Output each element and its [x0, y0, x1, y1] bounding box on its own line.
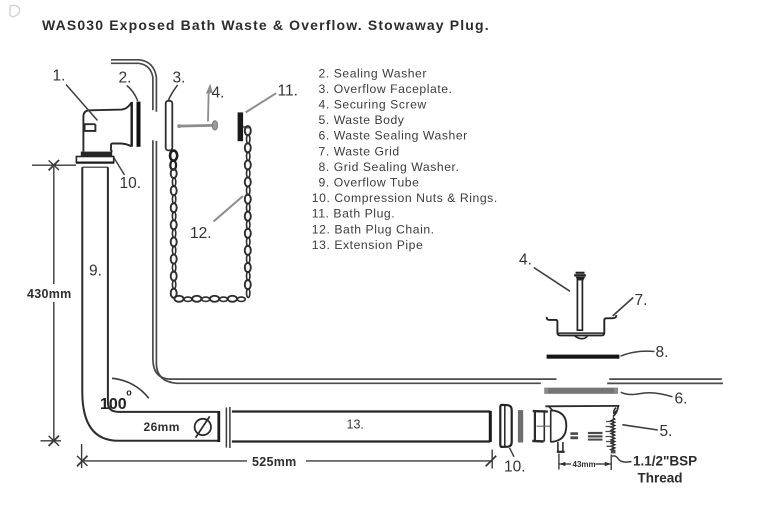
- svg-text:13.: 13.: [347, 418, 364, 432]
- svg-text:7.: 7.: [635, 292, 648, 309]
- svg-text:26mm: 26mm: [144, 420, 180, 434]
- svg-text:2.: 2.: [119, 70, 132, 87]
- svg-text:43mm: 43mm: [573, 460, 596, 469]
- svg-text:3.: 3.: [173, 70, 186, 87]
- svg-text:9.: 9.: [89, 263, 102, 280]
- svg-text:5. Waste Body: 5. Waste Body: [319, 113, 405, 127]
- svg-text:12. Bath Plug Chain.: 12. Bath Plug Chain.: [312, 222, 435, 236]
- svg-text:12.: 12.: [190, 225, 212, 242]
- svg-text:8. Grid Sealing Washer.: 8. Grid Sealing Washer.: [319, 160, 460, 174]
- svg-text:1.1/2"BSP: 1.1/2"BSP: [633, 454, 697, 469]
- svg-text:11.: 11.: [278, 83, 298, 100]
- svg-text:4.: 4.: [519, 252, 532, 269]
- svg-text:100: 100: [100, 396, 127, 413]
- svg-text:1.: 1.: [53, 68, 66, 85]
- svg-text:4. Securing Screw: 4. Securing Screw: [319, 98, 427, 112]
- svg-text:7. Waste Grid: 7. Waste Grid: [319, 144, 400, 158]
- svg-text:2. Sealing Washer: 2. Sealing Washer: [319, 66, 427, 80]
- svg-text:10. Compression Nuts & Rings.: 10. Compression Nuts & Rings.: [312, 191, 498, 205]
- svg-text:WAS030 Exposed Bath Waste & Ov: WAS030 Exposed Bath Waste & Overflow. St…: [42, 17, 490, 33]
- svg-text:o: o: [126, 388, 132, 398]
- svg-text:4.: 4.: [212, 85, 225, 102]
- svg-text:9. Overflow Tube: 9. Overflow Tube: [319, 176, 420, 190]
- svg-text:10.: 10.: [120, 175, 142, 192]
- svg-text:13. Extension Pipe: 13. Extension Pipe: [312, 238, 424, 252]
- svg-text:10.: 10.: [504, 459, 526, 476]
- svg-text:3. Overflow Faceplate.: 3. Overflow Faceplate.: [319, 82, 453, 96]
- svg-text:11. Bath Plug.: 11. Bath Plug.: [312, 207, 395, 221]
- svg-text:430mm: 430mm: [27, 287, 72, 301]
- svg-text:5.: 5.: [660, 423, 673, 440]
- svg-text:6.: 6.: [675, 391, 688, 408]
- svg-text:6. Waste Sealing Washer: 6. Waste Sealing Washer: [319, 129, 468, 143]
- svg-text:525mm: 525mm: [252, 455, 297, 469]
- svg-text:8.: 8.: [656, 344, 669, 361]
- svg-text:Thread: Thread: [638, 471, 683, 486]
